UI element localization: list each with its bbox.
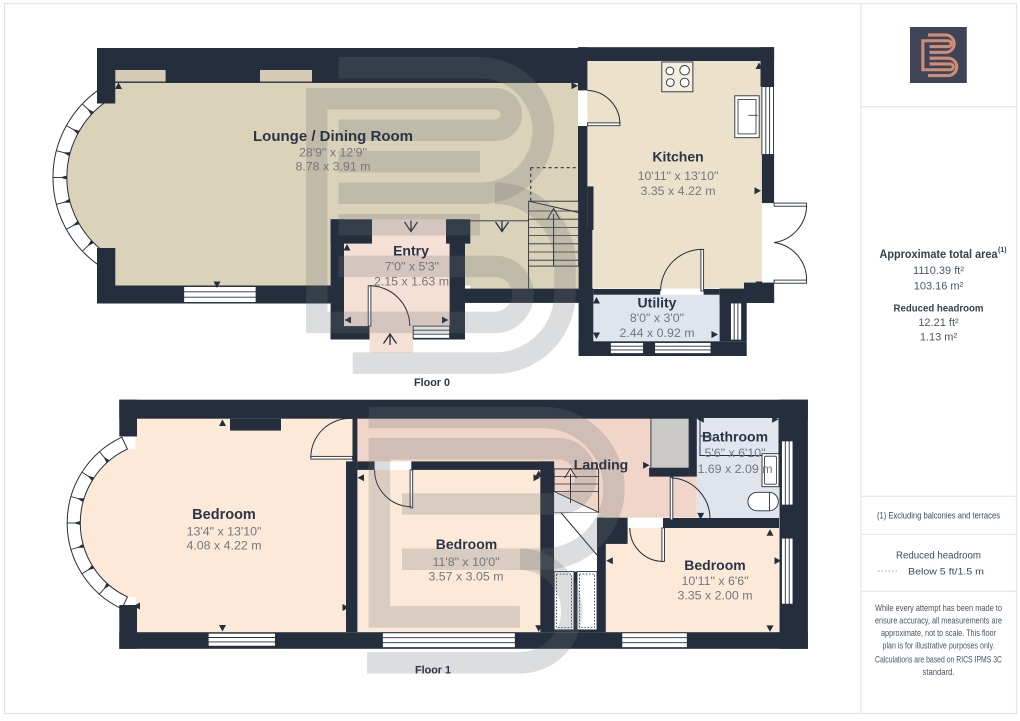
svg-text:Kitchen: Kitchen xyxy=(652,149,703,165)
svg-text:(1): (1) xyxy=(998,247,1007,254)
svg-text:Below 5 ft/1.5 m: Below 5 ft/1.5 m xyxy=(908,567,984,577)
svg-text:ensure accuracy, all measureme: ensure accuracy, all measurements are xyxy=(875,616,1002,626)
svg-text:1.69 x 2.09 m: 1.69 x 2.09 m xyxy=(697,462,772,476)
svg-text:Approximate total area: Approximate total area xyxy=(880,249,999,261)
svg-text:3.35 x 2.00 m: 3.35 x 2.00 m xyxy=(677,588,752,602)
svg-text:8'0" x 3'0": 8'0" x 3'0" xyxy=(630,311,684,325)
svg-text:Floor 1: Floor 1 xyxy=(415,665,451,677)
svg-text:Calculations are based on RICS: Calculations are based on RICS IPMS 3C xyxy=(875,655,1002,665)
svg-text:(1) Excluding balconies and te: (1) Excluding balconies and terraces xyxy=(877,511,1000,521)
svg-text:standard.: standard. xyxy=(923,667,955,677)
svg-text:12.21 ft²: 12.21 ft² xyxy=(918,317,959,329)
svg-text:Landing: Landing xyxy=(574,457,628,473)
svg-text:Bedroom: Bedroom xyxy=(684,557,745,573)
svg-text:10'11" x 13'10": 10'11" x 13'10" xyxy=(638,169,719,183)
svg-text:Reduced headroom: Reduced headroom xyxy=(894,303,984,315)
svg-text:13'4" x 13'10": 13'4" x 13'10" xyxy=(187,525,262,539)
svg-text:Bedroom: Bedroom xyxy=(436,536,497,552)
svg-text:approximate, not to scale. Thi: approximate, not to scale. This floor xyxy=(881,628,996,638)
svg-text:2.44 x 0.92 m: 2.44 x 0.92 m xyxy=(619,326,694,340)
svg-text:Floor 0: Floor 0 xyxy=(414,377,450,389)
svg-text:1110.39 ft²: 1110.39 ft² xyxy=(913,265,964,277)
svg-text:4.08 x 4.22 m: 4.08 x 4.22 m xyxy=(186,539,261,553)
svg-text:5'6" x 6'10": 5'6" x 6'10" xyxy=(704,446,765,460)
svg-text:7'0" x 5'3": 7'0" x 5'3" xyxy=(385,259,439,273)
svg-text:plan is for illustrative purpo: plan is for illustrative purposes only. xyxy=(883,641,995,651)
svg-text:11'8" x 10'0": 11'8" x 10'0" xyxy=(432,555,499,569)
svg-text:3.35 x 4.22 m: 3.35 x 4.22 m xyxy=(640,184,715,198)
svg-text:Reduced headroom: Reduced headroom xyxy=(896,551,981,562)
svg-text:3.57 x 3.05 m: 3.57 x 3.05 m xyxy=(428,569,503,583)
svg-text:Utility: Utility xyxy=(638,295,677,311)
svg-text:Entry: Entry xyxy=(393,243,429,259)
svg-text:Bedroom: Bedroom xyxy=(192,507,256,523)
svg-text:2.15 x 1.63 m: 2.15 x 1.63 m xyxy=(374,275,449,289)
svg-text:1.13 m²: 1.13 m² xyxy=(920,332,958,344)
svg-text:10'11" x 6'6": 10'11" x 6'6" xyxy=(681,574,748,588)
svg-text:Bathroom: Bathroom xyxy=(702,429,768,445)
svg-text:8.78 x 3.91 m: 8.78 x 3.91 m xyxy=(295,160,370,174)
svg-text:103.16 m²: 103.16 m² xyxy=(914,281,964,293)
svg-text:Lounge / Dining Room: Lounge / Dining Room xyxy=(253,128,413,145)
svg-text:While every attempt has been m: While every attempt has been made to xyxy=(875,603,1002,613)
svg-text:28'9" x 12'9": 28'9" x 12'9" xyxy=(299,145,367,159)
